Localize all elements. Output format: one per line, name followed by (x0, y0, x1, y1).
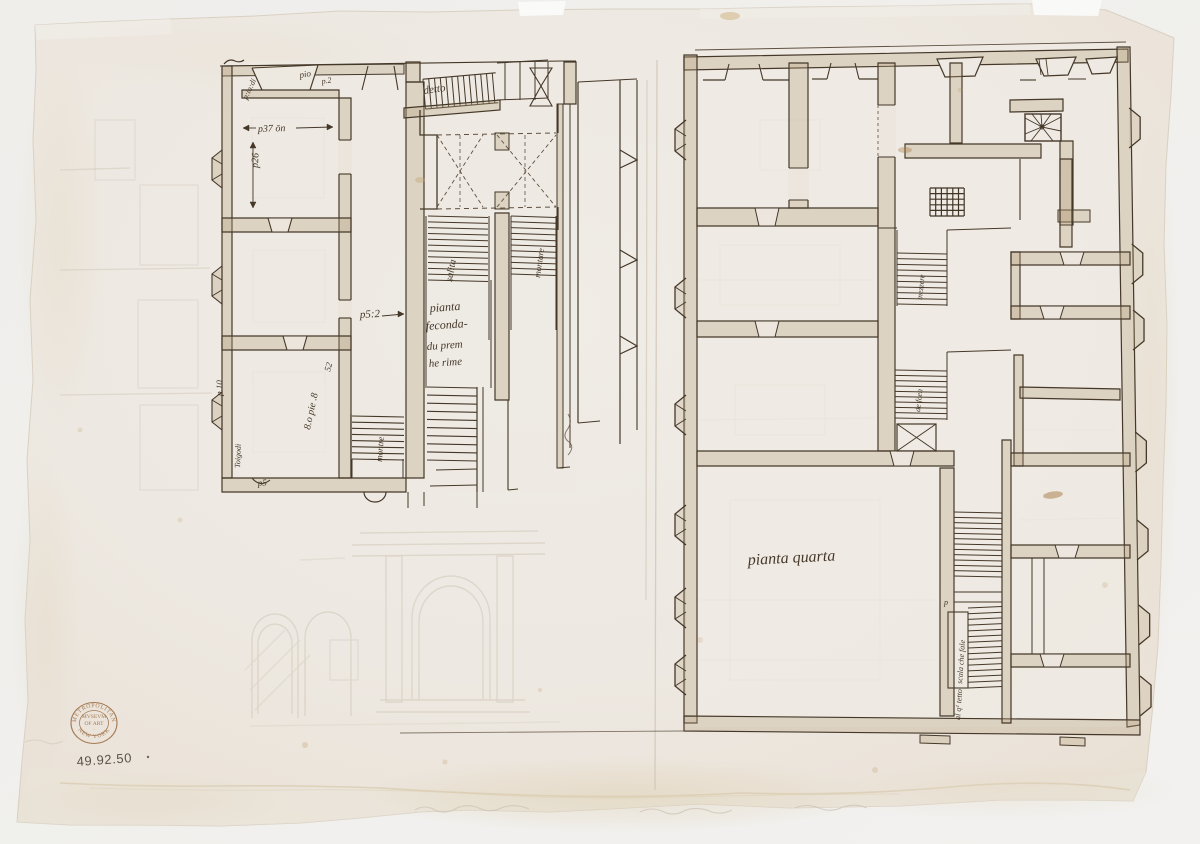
svg-text:feconda-: feconda- (425, 316, 468, 333)
svg-text:p5: p5 (256, 477, 267, 488)
svg-text:du prem: du prem (426, 339, 463, 353)
svg-text:p26: p26 (250, 153, 262, 169)
svg-text:p.2: p.2 (320, 75, 332, 86)
svg-text:p: p (943, 598, 948, 607)
svg-text:MVSEVM: MVSEVM (82, 714, 107, 720)
svg-text:p5:2: p5:2 (359, 308, 381, 321)
svg-text:montre: montre (374, 436, 386, 462)
svg-text:he rime: he rime (428, 356, 462, 370)
svg-text:pianta: pianta (428, 299, 461, 315)
svg-text:OF ART: OF ART (84, 721, 104, 727)
svg-text:Toigodi: Toigodi (233, 444, 243, 468)
svg-text:p37 ōn: p37 ōn (257, 123, 286, 135)
svg-text:p.10: p.10 (214, 379, 225, 397)
